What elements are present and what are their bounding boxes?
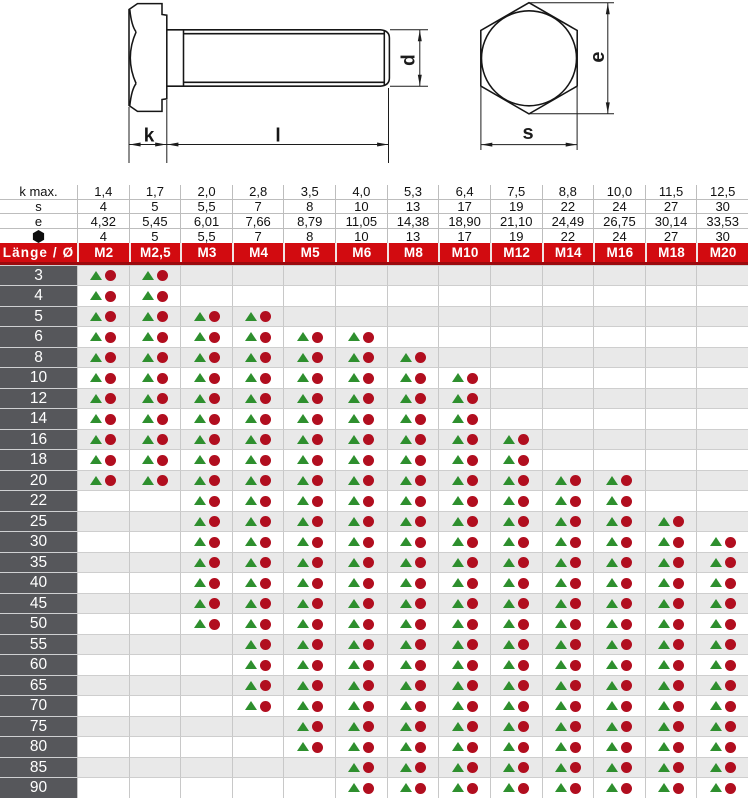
svg-text:k: k	[144, 126, 155, 147]
svg-text:s: s	[522, 122, 533, 144]
svg-text:e: e	[587, 51, 609, 62]
svg-text:l: l	[275, 126, 280, 147]
svg-text:d: d	[399, 54, 420, 66]
